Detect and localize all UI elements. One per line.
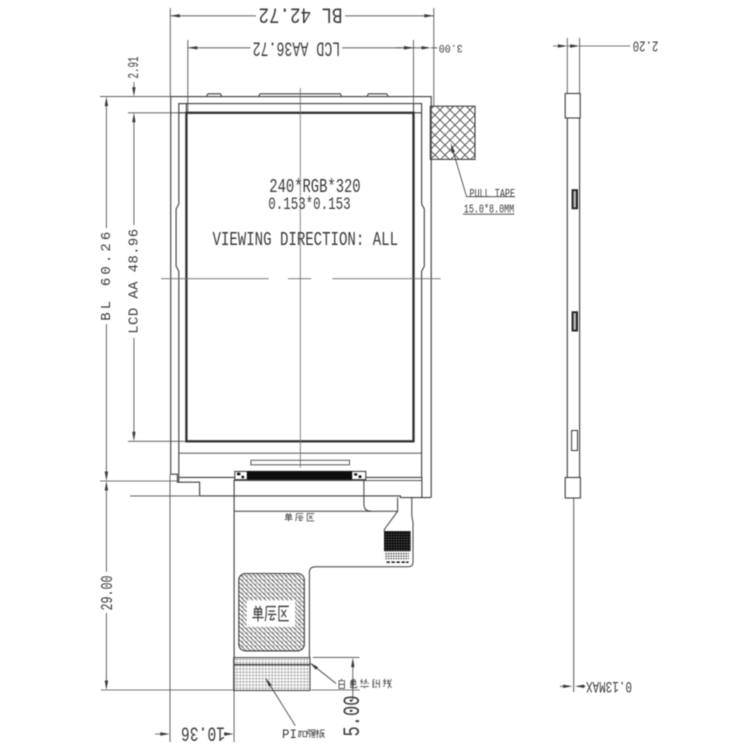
- svg-text:29.00: 29.00: [98, 576, 117, 611]
- svg-text:10.36: 10.36: [181, 720, 225, 743]
- svg-text:5.00: 5.00: [340, 696, 366, 737]
- svg-text:LCD AA36.72: LCD AA36.72: [253, 36, 341, 59]
- svg-text:2.91: 2.91: [126, 57, 143, 79]
- svg-text:BL 42.72: BL 42.72: [259, 2, 343, 27]
- svg-text:3.00: 3.00: [439, 41, 463, 53]
- svg-text:0.13MAX: 0.13MAX: [586, 677, 632, 695]
- svg-text:PI: PI: [282, 728, 297, 742]
- svg-text:PULL TAPE: PULL TAPE: [469, 187, 515, 201]
- svg-text:2.20: 2.20: [633, 37, 659, 54]
- svg-text:LCD AA 48.96: LCD AA 48.96: [127, 229, 143, 334]
- svg-text:0.153*0.153: 0.153*0.153: [268, 195, 351, 215]
- svg-text:VIEWING DIRECTION: ALL: VIEWING DIRECTION: ALL: [213, 229, 399, 251]
